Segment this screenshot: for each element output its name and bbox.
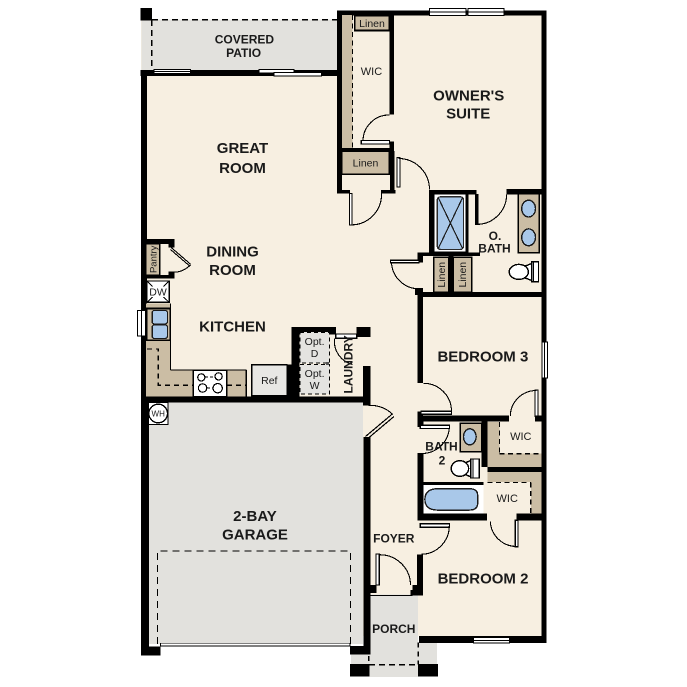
svg-text:Opt.: Opt.: [305, 336, 325, 348]
svg-text:KITCHEN: KITCHEN: [199, 319, 266, 336]
svg-text:BEDROOM 2: BEDROOM 2: [438, 571, 529, 588]
svg-text:Opt.: Opt.: [305, 368, 325, 380]
svg-text:BEDROOM 3: BEDROOM 3: [437, 349, 528, 366]
svg-text:D: D: [311, 348, 319, 360]
svg-text:Linen: Linen: [457, 262, 469, 288]
svg-text:SUITE: SUITE: [446, 106, 490, 123]
svg-text:GREAT: GREAT: [217, 140, 268, 157]
svg-text:FOYER: FOYER: [373, 532, 415, 546]
svg-text:ROOM: ROOM: [209, 262, 256, 279]
svg-text:Pantry: Pantry: [148, 245, 159, 273]
svg-text:DINING: DINING: [206, 244, 259, 261]
svg-text:WIC: WIC: [361, 66, 382, 78]
svg-text:WIC: WIC: [510, 431, 531, 443]
svg-text:COVERED: COVERED: [215, 33, 275, 47]
svg-text:WIC: WIC: [497, 493, 518, 505]
svg-text:BATH: BATH: [478, 242, 510, 256]
svg-text:LAUNDRY: LAUNDRY: [341, 335, 355, 393]
svg-text:PATIO: PATIO: [226, 46, 261, 60]
svg-text:2: 2: [439, 454, 446, 468]
svg-text:W: W: [310, 380, 320, 392]
svg-text:PORCH: PORCH: [372, 622, 415, 636]
svg-text:ROOM: ROOM: [219, 160, 266, 177]
svg-text:OWNER'S: OWNER'S: [433, 88, 504, 105]
svg-text:WH: WH: [152, 409, 166, 418]
svg-text:Linen: Linen: [353, 158, 379, 170]
svg-text:Ref: Ref: [261, 375, 277, 387]
svg-text:Linen: Linen: [359, 18, 385, 30]
svg-text:2-BAY: 2-BAY: [233, 508, 277, 525]
svg-text:DW: DW: [149, 287, 167, 299]
svg-text:Linen: Linen: [436, 262, 448, 288]
svg-text:BATH: BATH: [425, 440, 457, 454]
svg-text:GARAGE: GARAGE: [222, 527, 288, 544]
